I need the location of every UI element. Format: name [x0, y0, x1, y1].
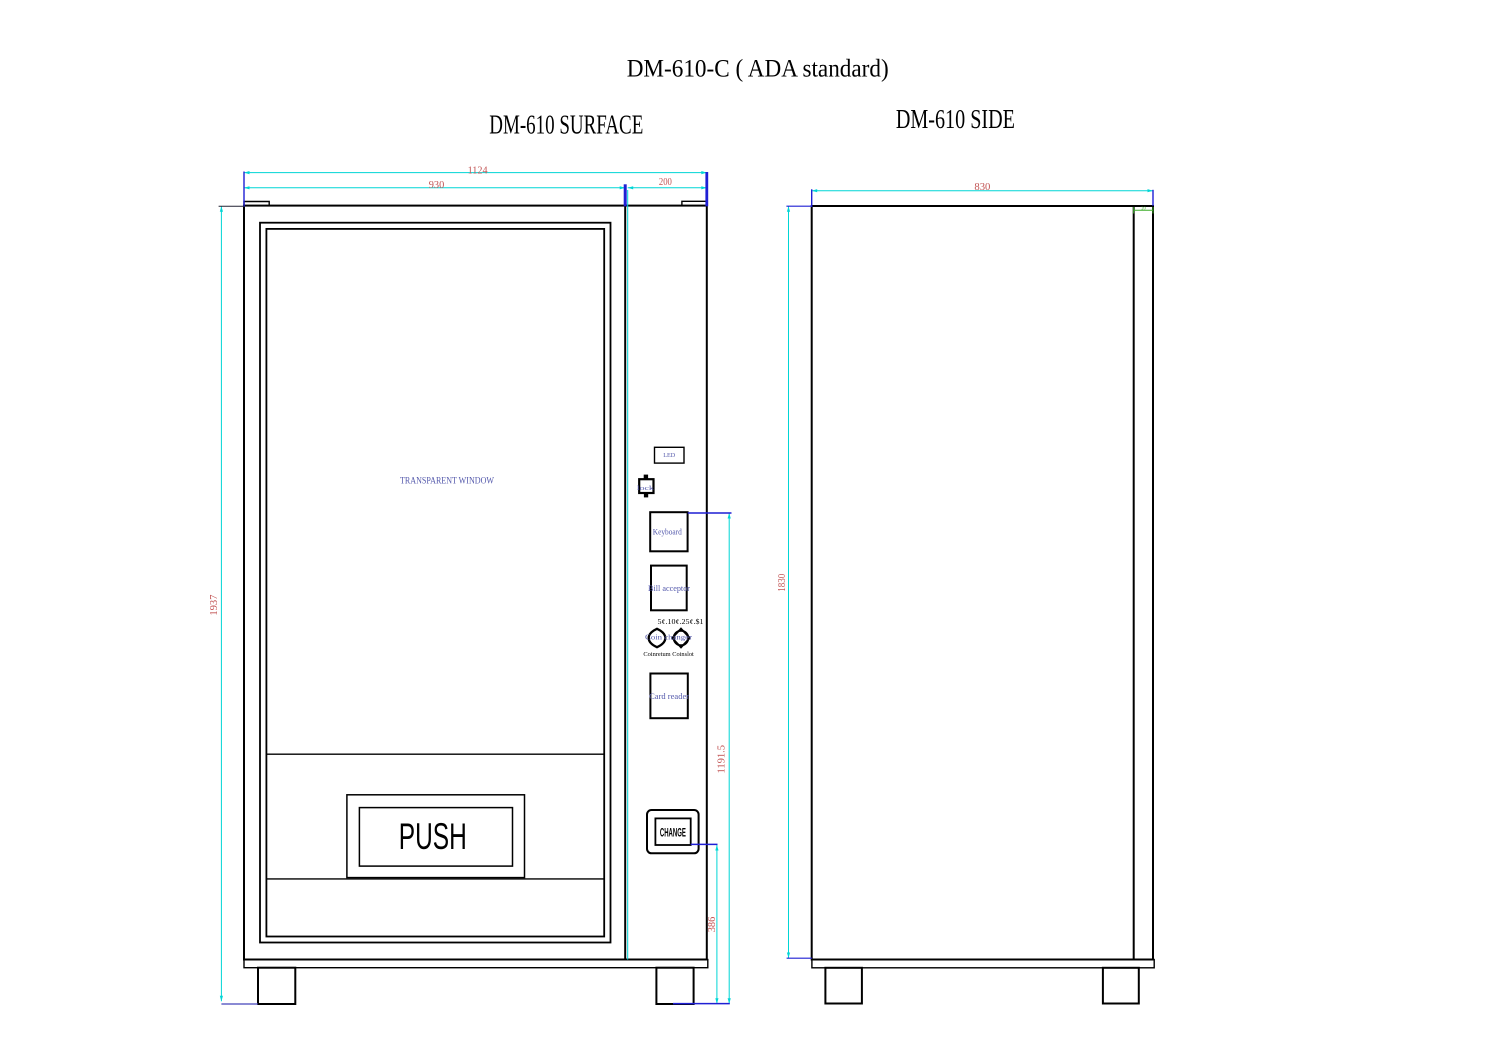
- svg-text:1830: 1830: [777, 574, 788, 592]
- svg-text:386: 386: [707, 917, 718, 933]
- svg-text:Coin changer: Coin changer: [645, 633, 693, 642]
- svg-text:DM-610 SIDE: DM-610 SIDE: [896, 104, 1015, 134]
- svg-text:Keyboard: Keyboard: [653, 528, 682, 537]
- svg-text:Card reader: Card reader: [649, 692, 689, 701]
- svg-text:TRANSPARENT WINDOW: TRANSPARENT WINDOW: [400, 477, 494, 487]
- svg-text:CHANGE: CHANGE: [660, 825, 686, 839]
- svg-text:200: 200: [659, 177, 672, 188]
- svg-text:930: 930: [429, 180, 445, 191]
- svg-text:830: 830: [974, 182, 990, 193]
- svg-text:DM-610 SURFACE: DM-610 SURFACE: [489, 110, 643, 140]
- svg-text:1124: 1124: [468, 165, 488, 176]
- svg-text:Coinretum Coinslot: Coinretum Coinslot: [643, 651, 694, 658]
- svg-text:PUSH: PUSH: [399, 816, 467, 857]
- svg-text:DM-610-C ( ADA standard): DM-610-C ( ADA standard): [627, 55, 889, 82]
- svg-text:LED: LED: [663, 452, 675, 459]
- svg-text:Bill acceptor: Bill acceptor: [648, 584, 690, 593]
- svg-text:20: 20: [1141, 206, 1146, 211]
- svg-text:1191.5: 1191.5: [716, 745, 727, 774]
- svg-text:lock: lock: [637, 486, 654, 492]
- svg-text:1937: 1937: [209, 595, 220, 616]
- svg-text:5¢.10¢.25¢.$1: 5¢.10¢.25¢.$1: [658, 618, 705, 626]
